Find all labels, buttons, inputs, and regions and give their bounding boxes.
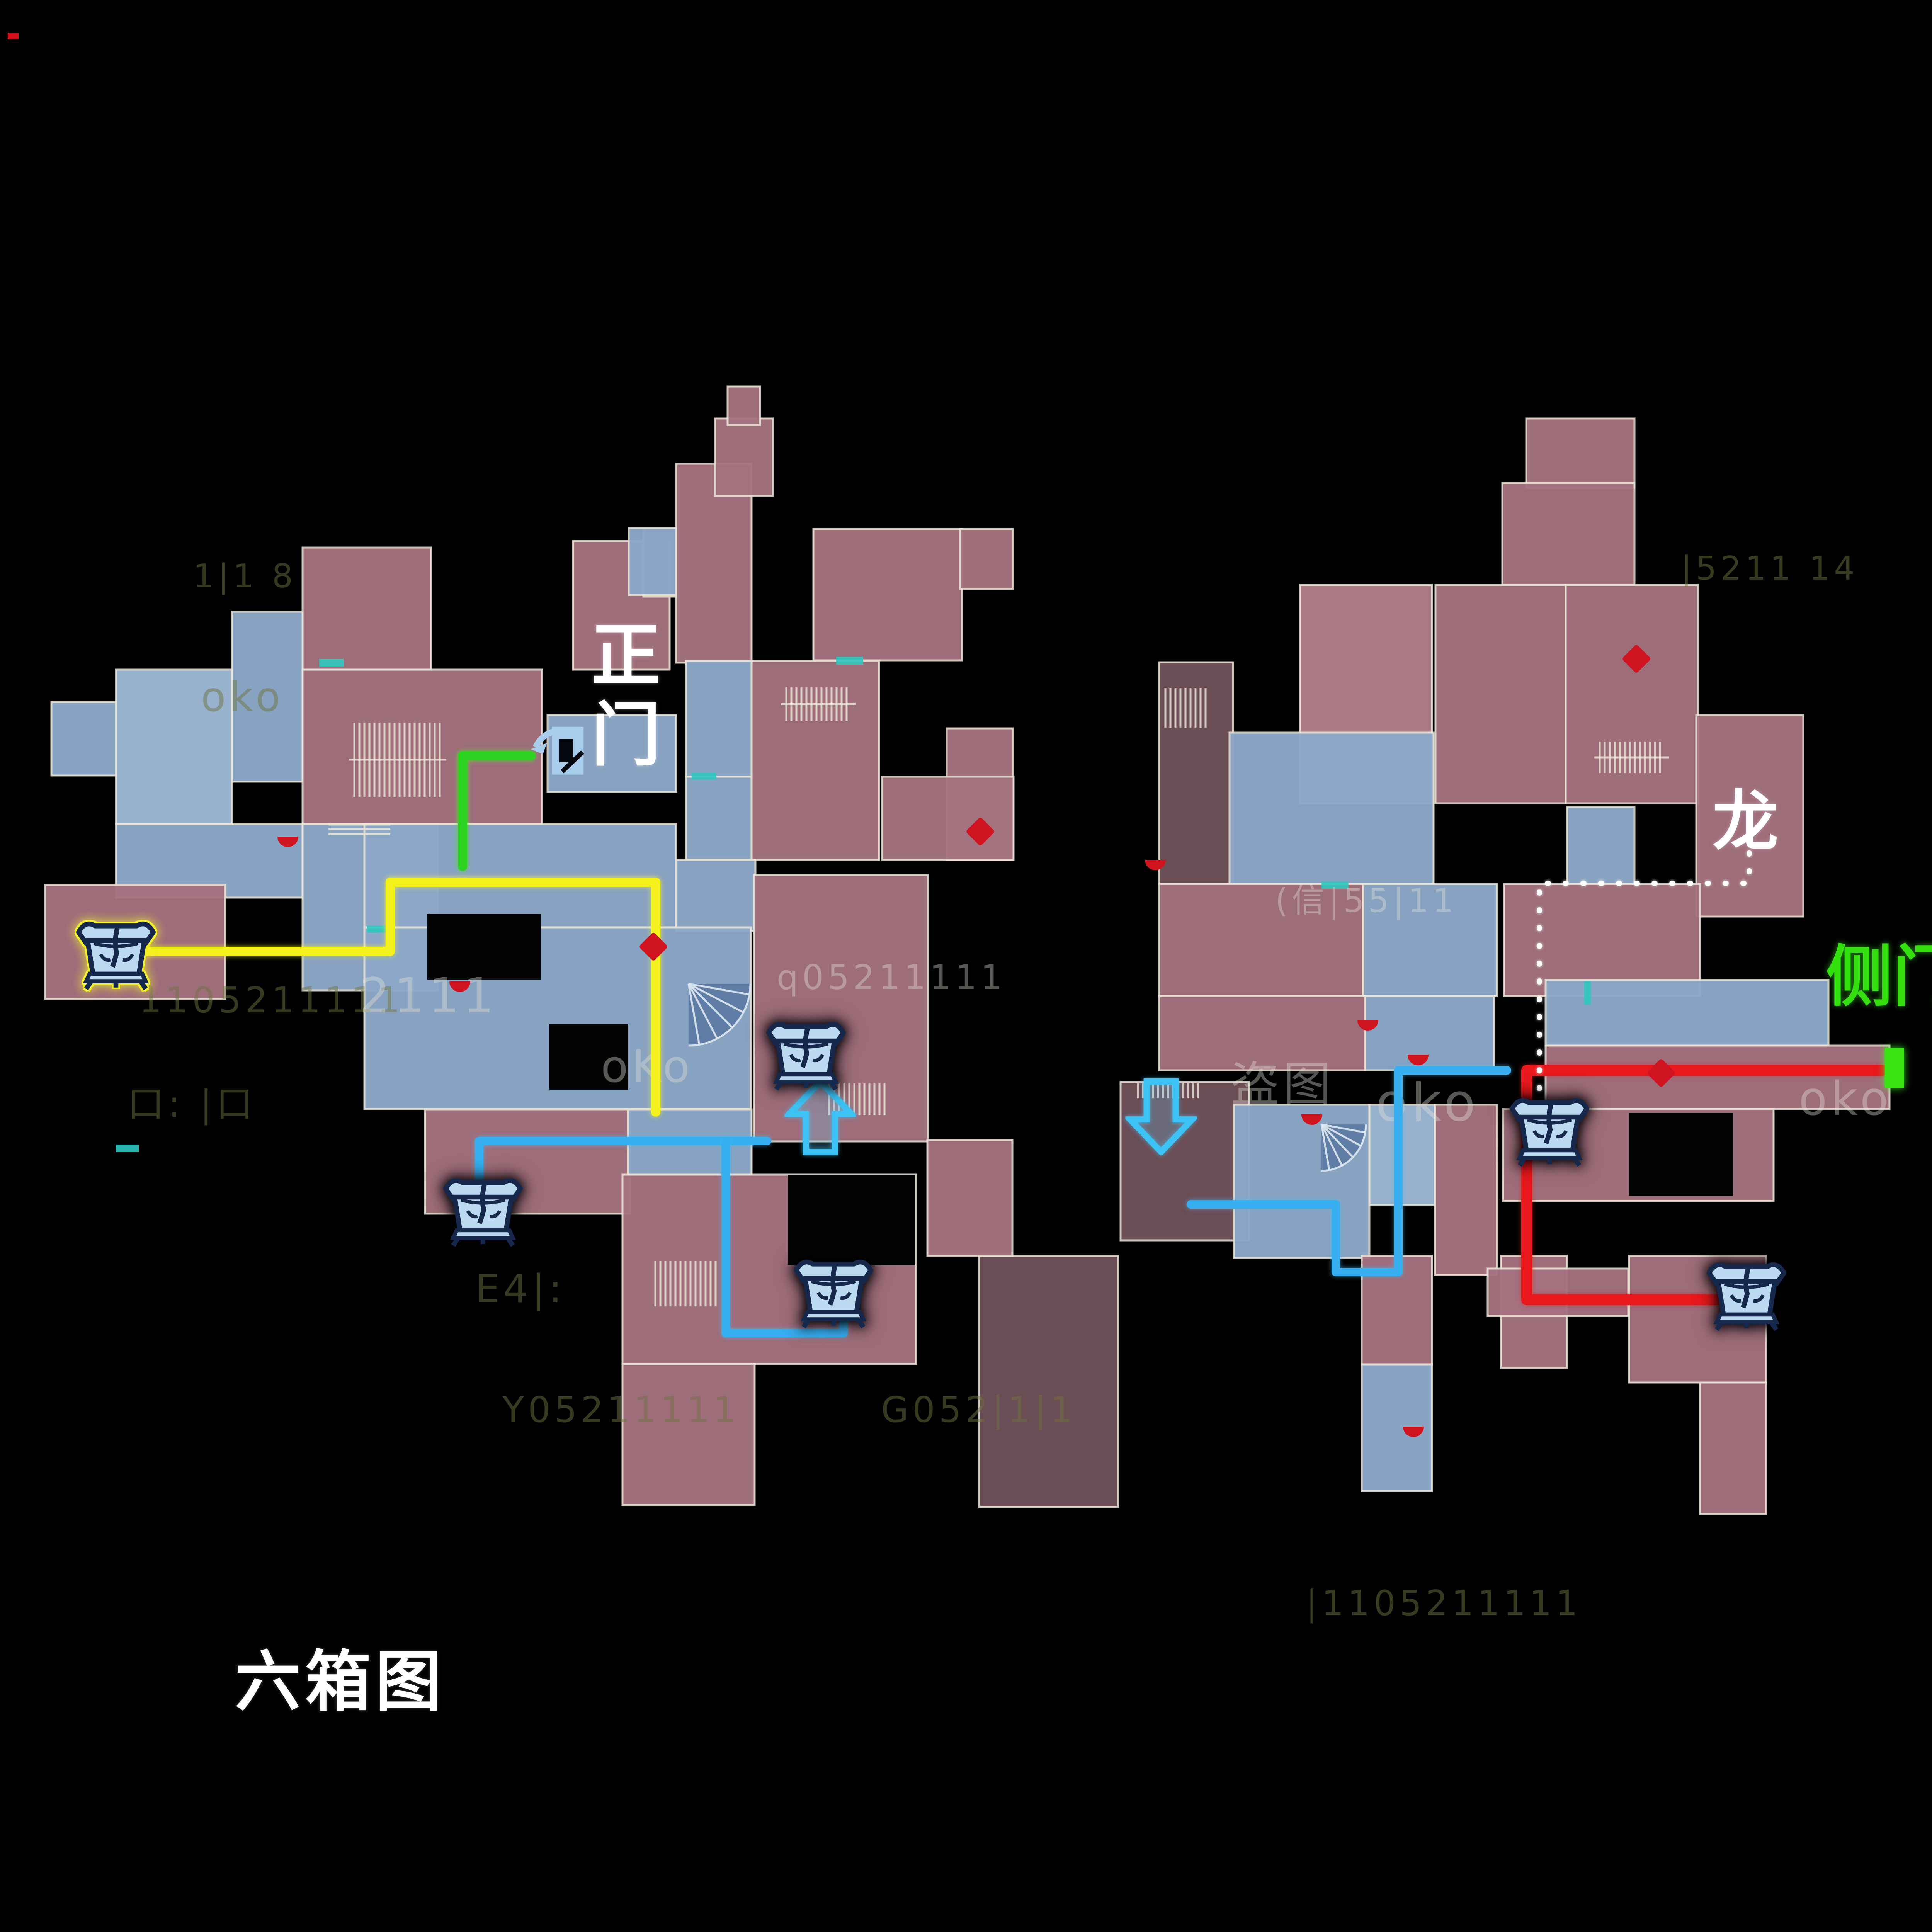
watermark-text: |5211 14 bbox=[1681, 549, 1859, 588]
map-title: 六箱图 bbox=[235, 1647, 446, 1718]
chest-icon bbox=[769, 1024, 843, 1089]
room bbox=[882, 777, 1014, 860]
chest-icon bbox=[1709, 1265, 1784, 1330]
watermark-text: 盗图 bbox=[1231, 1057, 1335, 1113]
door-gap bbox=[319, 659, 344, 667]
door-gap bbox=[116, 1145, 139, 1152]
watermark-text: E4|: bbox=[475, 1266, 566, 1311]
door-gap bbox=[692, 773, 716, 780]
chest-icon bbox=[796, 1262, 871, 1327]
room bbox=[728, 386, 760, 425]
room bbox=[1526, 418, 1634, 488]
watermark-text: G052|1|1 bbox=[881, 1389, 1077, 1430]
room bbox=[303, 548, 431, 670]
room bbox=[364, 824, 676, 927]
room bbox=[979, 1256, 1118, 1507]
room bbox=[676, 860, 755, 931]
watermark-text: oKo bbox=[601, 1041, 694, 1093]
room bbox=[686, 661, 752, 777]
door-gap bbox=[1584, 981, 1591, 1005]
watermark-text: oko bbox=[1376, 1072, 1480, 1133]
watermark-text: oko bbox=[201, 673, 284, 721]
door-gap bbox=[836, 657, 863, 665]
room bbox=[629, 528, 676, 595]
void-area bbox=[1629, 1113, 1733, 1196]
map-canvas: 1|1 8oko1105211111口: |口2111oKoE4|:q05211… bbox=[0, 0, 1932, 1932]
room bbox=[1435, 585, 1566, 803]
void-area bbox=[788, 1175, 915, 1265]
label-side-gate: 侧门 bbox=[1826, 941, 1932, 1013]
room bbox=[622, 1364, 755, 1505]
chest-icon bbox=[1512, 1100, 1587, 1165]
watermark-text: 2111 bbox=[359, 968, 498, 1024]
room bbox=[1567, 807, 1634, 884]
chest-icon bbox=[446, 1180, 520, 1245]
room bbox=[1502, 483, 1634, 585]
watermark-text: |1105211111 bbox=[1306, 1583, 1582, 1624]
watermark-text: q05211111 bbox=[777, 957, 1006, 997]
room bbox=[715, 418, 773, 496]
watermark-text: 口: |口 bbox=[128, 1083, 257, 1126]
label-dragon: 龙 bbox=[1713, 787, 1778, 858]
watermark-text: 1|1 8 bbox=[193, 557, 297, 595]
room bbox=[752, 661, 879, 860]
treasure-map: 1|1 8oko1105211111口: |口2111oKoE4|:q05211… bbox=[0, 0, 1932, 1932]
room bbox=[1230, 733, 1434, 884]
watermark-text: (信|55|11 bbox=[1275, 882, 1458, 920]
room bbox=[51, 702, 116, 776]
room bbox=[927, 1140, 1012, 1256]
side-door-marker bbox=[1885, 1048, 1904, 1088]
room bbox=[1566, 585, 1698, 803]
watermark-text: Y05211111 bbox=[502, 1389, 740, 1430]
chest-icon-start bbox=[78, 924, 153, 989]
room bbox=[303, 670, 542, 824]
room bbox=[813, 529, 962, 660]
label-main-gate: 正门 bbox=[582, 618, 656, 777]
room bbox=[1488, 1269, 1628, 1316]
watermark-text: oko bbox=[1799, 1072, 1892, 1126]
room bbox=[1121, 1082, 1249, 1240]
corner-red-mark bbox=[8, 33, 19, 39]
room bbox=[1700, 1383, 1766, 1514]
room bbox=[960, 529, 1013, 589]
room bbox=[686, 777, 752, 860]
room bbox=[1365, 996, 1494, 1070]
